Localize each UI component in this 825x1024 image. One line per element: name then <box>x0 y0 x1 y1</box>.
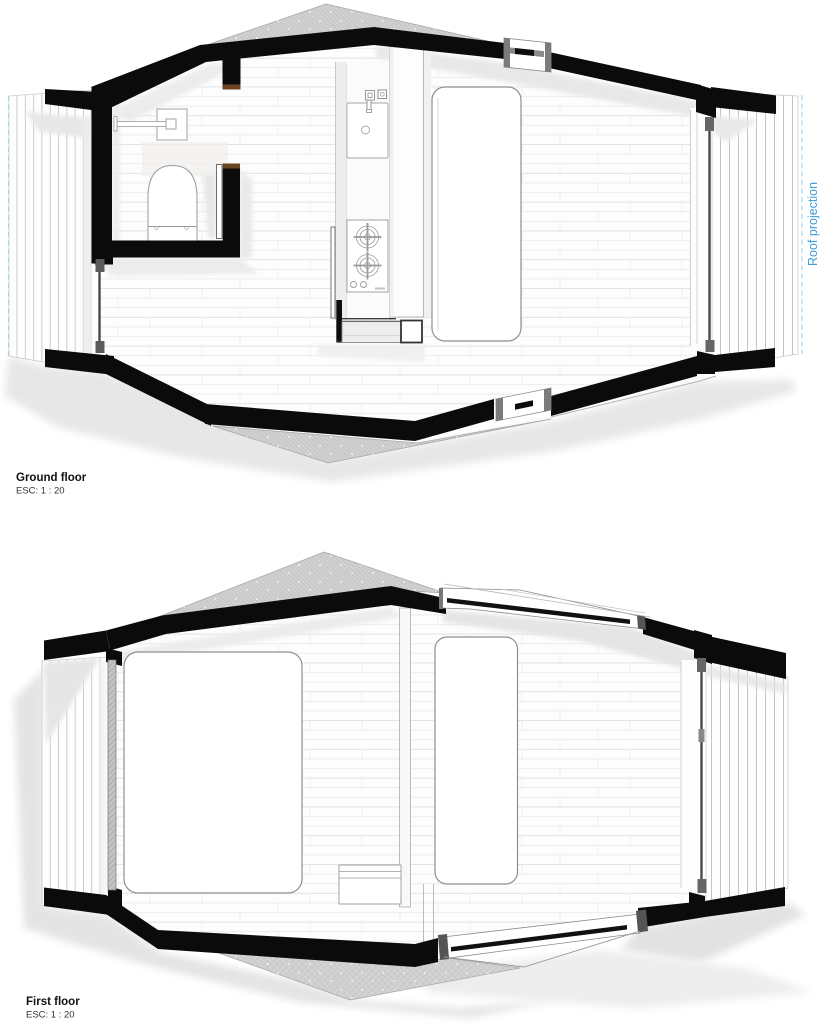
svg-text:Roof projection: Roof projection <box>806 182 820 266</box>
svg-text:First floor: First floor <box>26 996 80 1008</box>
svg-text:Ground floor: Ground floor <box>16 472 87 484</box>
svg-text:ESC: 1 : 20: ESC: 1 : 20 <box>16 486 65 497</box>
svg-text:ESC: 1 : 20: ESC: 1 : 20 <box>26 1010 75 1021</box>
